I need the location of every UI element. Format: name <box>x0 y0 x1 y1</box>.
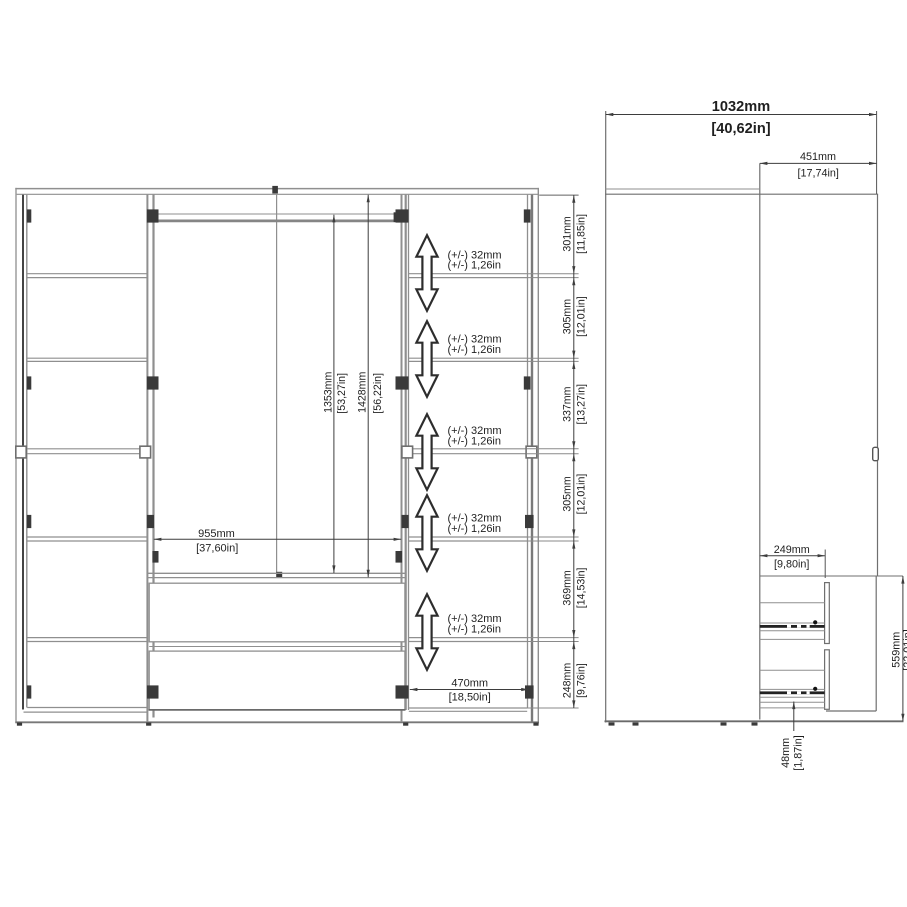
svg-text:1428mm: 1428mm <box>357 372 369 413</box>
svg-text:1353mm: 1353mm <box>322 372 334 413</box>
svg-text:[11,85in]: [11,85in] <box>575 214 587 254</box>
svg-text:[9,80in]: [9,80in] <box>774 558 809 570</box>
svg-text:[53,27in]: [53,27in] <box>336 373 348 414</box>
svg-text:249mm: 249mm <box>774 544 810 556</box>
svg-text:[13,27in]: [13,27in] <box>575 384 587 425</box>
svg-text:248mm: 248mm <box>561 663 573 698</box>
svg-text:559mm: 559mm <box>890 632 902 668</box>
svg-text:(+/-) 1,26in: (+/-) 1,26in <box>448 523 502 535</box>
svg-text:[18,50in]: [18,50in] <box>449 691 491 703</box>
svg-text:[9,76in]: [9,76in] <box>575 663 587 698</box>
svg-text:48mm: 48mm <box>780 738 792 768</box>
svg-text:[56,22in]: [56,22in] <box>372 373 384 414</box>
svg-text:955mm: 955mm <box>198 528 235 540</box>
svg-text:(+/-) 1,26in: (+/-) 1,26in <box>448 260 502 272</box>
svg-text:(+/-) 1,26in: (+/-) 1,26in <box>448 435 502 447</box>
svg-text:305mm: 305mm <box>561 476 573 511</box>
svg-text:[37,60in]: [37,60in] <box>196 542 238 554</box>
svg-text:470mm: 470mm <box>451 678 488 690</box>
svg-text:[17,74in]: [17,74in] <box>797 167 838 179</box>
svg-text:(+/-) 1,26in: (+/-) 1,26in <box>448 624 502 636</box>
svg-text:[40,62in]: [40,62in] <box>711 121 770 137</box>
svg-text:[14,53in]: [14,53in] <box>575 568 587 609</box>
svg-text:[22,01in]: [22,01in] <box>902 629 907 670</box>
svg-text:369mm: 369mm <box>561 570 573 605</box>
svg-text:[12,01in]: [12,01in] <box>575 474 587 515</box>
svg-text:(+/-) 1,26in: (+/-) 1,26in <box>448 344 502 356</box>
svg-text:[12,01in]: [12,01in] <box>575 296 587 337</box>
svg-text:301mm: 301mm <box>561 216 573 251</box>
svg-text:1032mm: 1032mm <box>712 99 770 115</box>
svg-text:[1,87in]: [1,87in] <box>793 735 805 770</box>
svg-text:337mm: 337mm <box>561 386 573 421</box>
svg-text:451mm: 451mm <box>800 151 836 163</box>
svg-text:305mm: 305mm <box>561 299 573 334</box>
